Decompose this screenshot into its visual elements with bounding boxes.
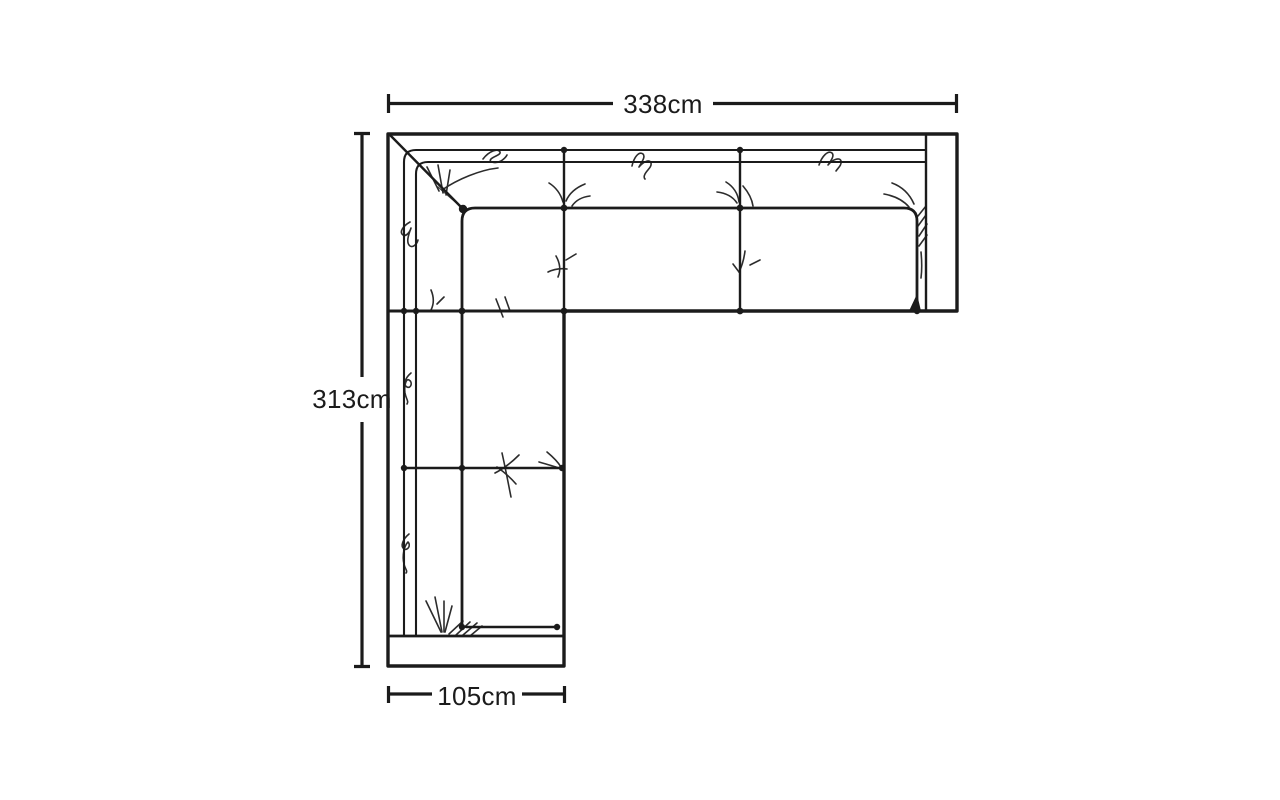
sofa-outline [388,134,957,666]
backrest-seam-inner [416,162,926,636]
diagram-canvas: 338cm 313cm 105cm [0,0,1280,800]
sofa-floorplan-drawing: 338cm 313cm 105cm [0,0,1280,800]
dimension-top-width-label: 338cm [623,89,703,119]
backrest-seam-outer [404,150,926,636]
sofa-sketch [388,134,957,666]
dimension-bottom-depth: 105cm [389,681,565,711]
dimension-left-height: 313cm [312,134,392,667]
corner-fletching-marks [427,165,498,195]
dimension-left-height-label: 313cm [312,384,392,414]
dimension-bottom-depth-label: 105cm [437,681,517,711]
cushion-wrinkle-marks [431,182,922,497]
stitch-knots [401,147,920,630]
seat-cushion-edges [462,208,917,627]
backrest-fabric-squiggles [401,150,841,573]
dimension-top-width: 338cm [389,89,957,119]
armrest-corner-wedge [909,294,921,311]
bottom-corner-shading [426,597,482,636]
